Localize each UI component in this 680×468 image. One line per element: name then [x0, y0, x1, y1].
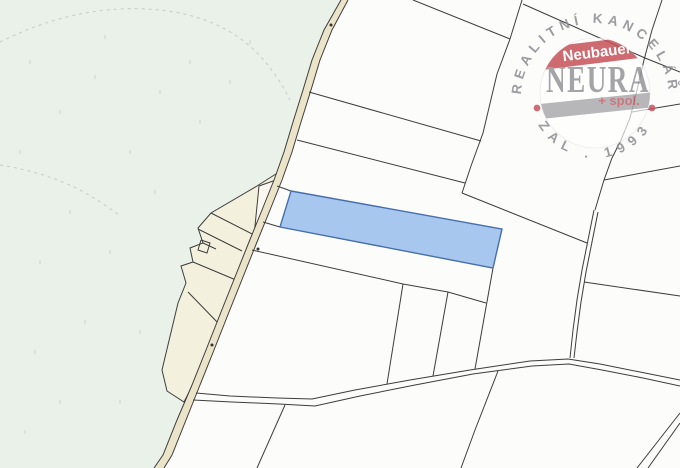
logo-left-dot	[534, 105, 541, 112]
logo-right-dot	[649, 105, 656, 112]
cadastral-map-canvas[interactable]: Neubauer NEURA + spol. REALITNÍ KANCELÁŘ…	[0, 0, 680, 468]
logo-suffix-text: + spol.	[598, 93, 640, 108]
